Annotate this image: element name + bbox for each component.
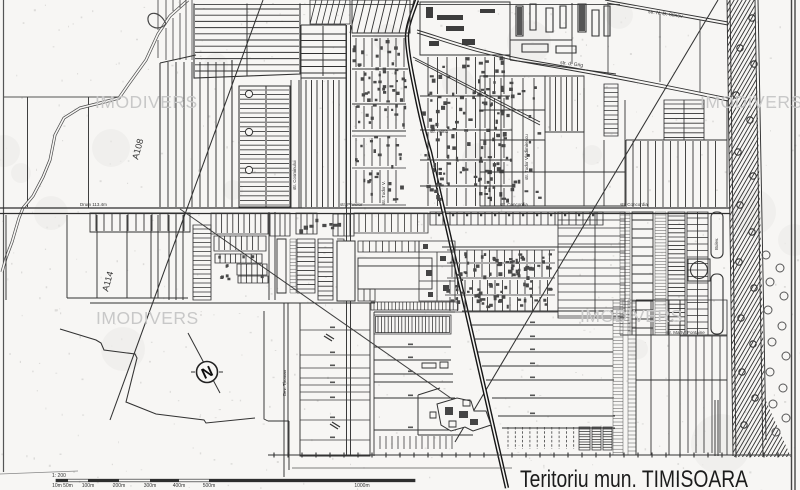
svg-text:Bulev.: Bulev. xyxy=(714,238,719,250)
svg-text:200m: 200m xyxy=(113,483,126,489)
svg-text:IMODIVERS: IMODIVERS xyxy=(700,92,800,112)
svg-text:IMODIVERS: IMODIVERS xyxy=(580,306,683,326)
svg-text:500m: 500m xyxy=(203,483,216,489)
svg-text:IMODIVERS: IMODIVERS xyxy=(96,308,199,328)
svg-text:100m: 100m xyxy=(82,483,95,489)
svg-text:Teritoriu mun. TIMISOARA: Teritoriu mun. TIMISOARA xyxy=(520,466,748,490)
svg-text:str. Tudor V.: str. Tudor V. xyxy=(381,181,386,205)
svg-text:400m: 400m xyxy=(173,483,186,489)
svg-text:Bev. Thomas: Bev. Thomas xyxy=(282,369,287,396)
svg-text:1: 200: 1: 200 xyxy=(52,473,66,479)
svg-text:10m: 10m xyxy=(52,483,62,489)
svg-text:IMODIVERS: IMODIVERS xyxy=(95,92,198,112)
svg-text:str. Pavelor: str. Pavelor xyxy=(340,202,363,207)
svg-text:Drum 113.4m: Drum 113.4m xyxy=(80,202,107,207)
svg-text:300m: 300m xyxy=(144,483,157,489)
svg-text:str. Tudor Vladimirescu: str. Tudor Vladimirescu xyxy=(524,134,529,180)
svg-text:50m: 50m xyxy=(63,483,73,489)
svg-text:str. Martyr Fontaine: str. Martyr Fontaine xyxy=(666,330,705,335)
svg-text:str. Cosminului: str. Cosminului xyxy=(292,160,297,190)
svg-text:1000m: 1000m xyxy=(354,483,369,489)
